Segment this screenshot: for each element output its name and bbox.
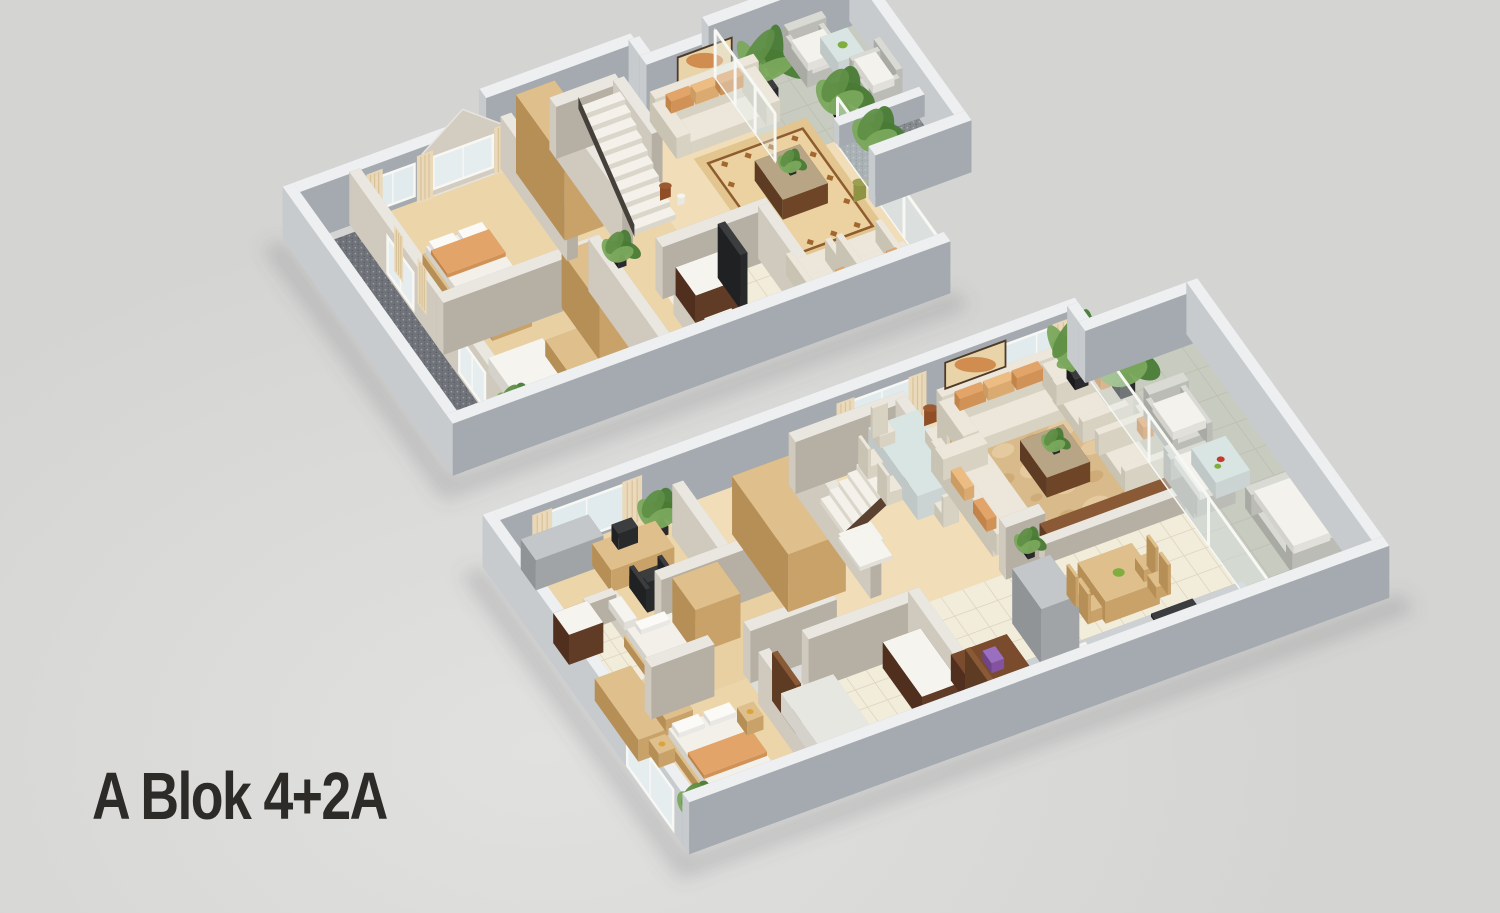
plan-title: A Blok 4+2A	[92, 758, 387, 835]
render-stage: A Blok 4+2A	[0, 0, 1500, 913]
bowl	[838, 41, 848, 48]
plan-title-label: A Blok 4+2A	[92, 759, 387, 834]
curtain	[417, 150, 433, 204]
bowl	[1113, 568, 1125, 577]
